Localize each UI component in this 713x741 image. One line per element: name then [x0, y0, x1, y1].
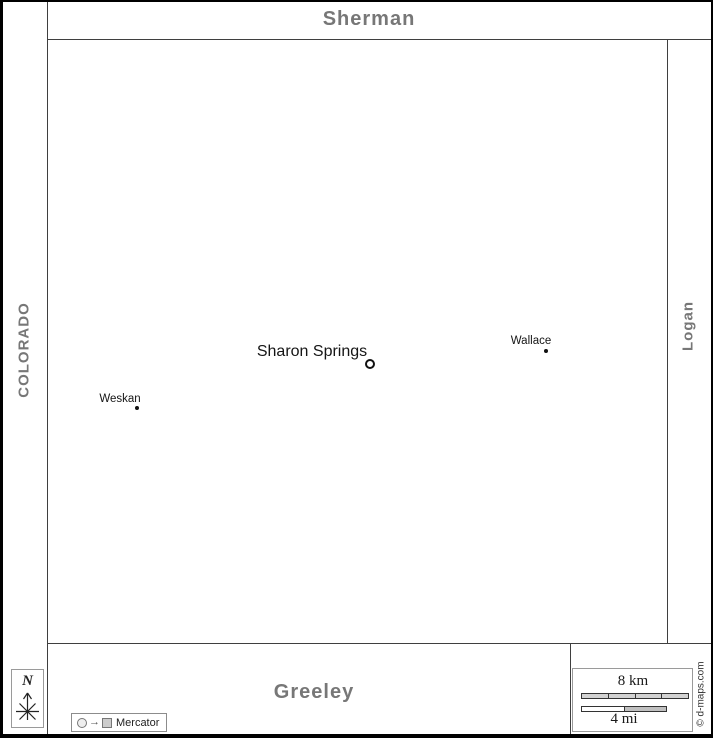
city-label-weskan: Weskan — [99, 393, 140, 405]
city-label-sharon-springs: Sharon Springs — [257, 343, 367, 361]
city-marker-weskan — [135, 406, 139, 410]
map-credit: © d-maps.com — [696, 661, 707, 726]
map-frame — [0, 0, 713, 738]
border-south-line — [48, 643, 711, 644]
arrow-right-icon: → — [89, 717, 100, 728]
scale-box: 8 km 4 mi — [572, 668, 693, 732]
border-west-line — [47, 2, 48, 737]
neighbor-label-east: Logan — [680, 301, 697, 351]
city-marker-wallace — [544, 349, 548, 353]
scale-km-label: 8 km — [618, 673, 648, 690]
projection-legend: → Mercator — [71, 713, 167, 732]
city-marker-sharon-springs — [365, 359, 375, 369]
neighbor-label-south: Greeley — [274, 681, 354, 704]
projection-name: Mercator — [116, 717, 159, 729]
scale-segment — [582, 694, 608, 698]
scale-segment — [608, 694, 635, 698]
county-map: Sherman Greeley COLORADO Logan Sharon Sp… — [0, 0, 713, 741]
sphere-icon — [77, 718, 87, 728]
flat-map-icon — [102, 718, 112, 728]
scale-km-bar — [581, 693, 689, 699]
neighbor-label-north: Sherman — [323, 8, 416, 31]
city-label-wallace: Wallace — [511, 335, 551, 347]
scale-mi-label: 4 mi — [610, 711, 637, 728]
border-north-line — [48, 39, 711, 40]
scale-segment — [661, 694, 688, 698]
border-south-right-line — [570, 644, 571, 737]
scale-segment — [635, 694, 662, 698]
compass-box: N — [11, 669, 44, 728]
neighbor-label-west: COLORADO — [16, 302, 33, 398]
compass-north-label: N — [12, 674, 43, 689]
border-east-line — [667, 40, 668, 643]
compass-star-icon — [13, 689, 42, 723]
